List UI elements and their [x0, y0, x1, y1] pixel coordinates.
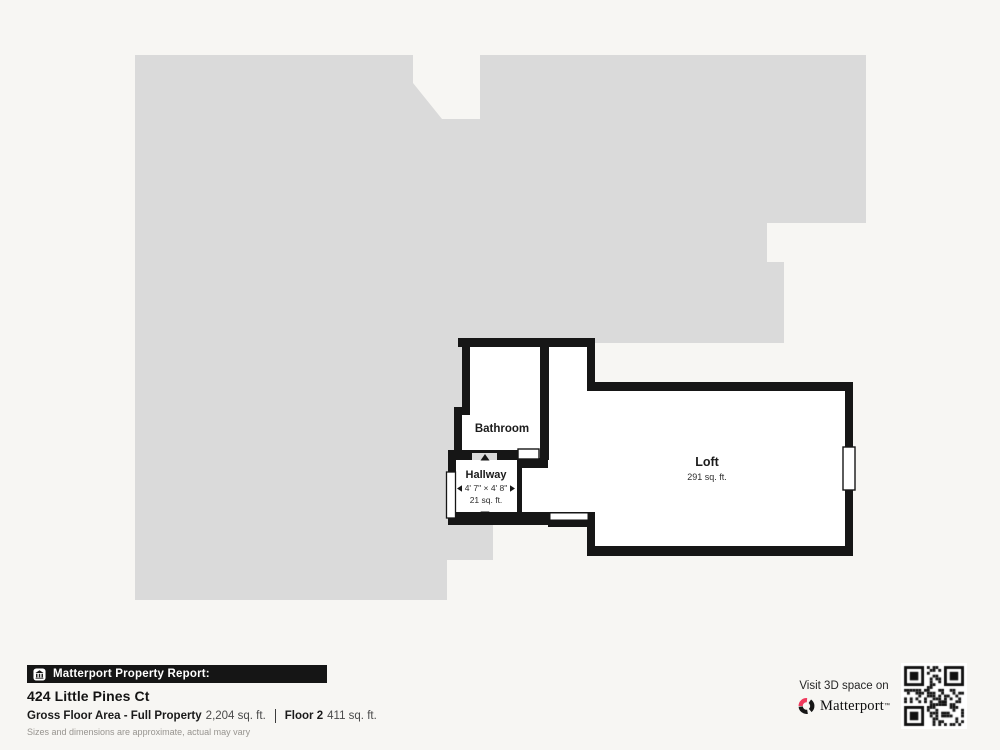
- building-icon: [33, 668, 46, 681]
- qr-code: [901, 663, 967, 729]
- gross-floor-area-value: 2,204 sq. ft.: [206, 710, 266, 722]
- floor-plan: Bathroom Hallway 4' 7" × 4' 8" 21 sq. ft…: [0, 0, 1000, 750]
- trademark-symbol: ™: [884, 702, 890, 710]
- floor-label: Floor 2: [285, 710, 323, 722]
- bathroom-alcove: [518, 449, 539, 459]
- floor-area-metrics: Gross Floor Area - Full Property 2,204 s…: [27, 709, 377, 723]
- property-report-page: Bathroom Hallway 4' 7" × 4' 8" 21 sq. ft…: [0, 0, 1000, 750]
- hallway-area: 21 sq. ft.: [470, 495, 503, 505]
- property-address: 424 Little Pines Ct: [27, 688, 150, 704]
- hallway-dimensions: 4' 7" × 4' 8": [465, 483, 508, 493]
- loft-floor: [595, 391, 845, 546]
- loft-label: Loft: [695, 455, 719, 469]
- metric-divider: [275, 709, 276, 723]
- gross-floor-area-label: Gross Floor Area - Full Property: [27, 710, 202, 722]
- lower-wall-window: [550, 513, 588, 520]
- report-bar-label: Matterport Property Report:: [53, 668, 210, 680]
- qr-code-box: [901, 663, 967, 729]
- disclaimer-text: Sizes and dimensions are approximate, ac…: [27, 727, 250, 737]
- matterport-logo-icon: [798, 697, 815, 715]
- visit-3d-text: Visit 3D space on: [786, 680, 902, 692]
- matterport-wordmark: Matterport: [820, 698, 884, 715]
- matterport-brand: Matterport™: [786, 697, 902, 715]
- report-title-bar: Matterport Property Report:: [27, 665, 327, 683]
- floor-area-value: 411 sq. ft.: [327, 710, 377, 722]
- bathroom-door-threshold: [472, 450, 497, 453]
- loft-area: 291 sq. ft.: [687, 472, 727, 482]
- loft-window: [843, 447, 855, 490]
- hallway-label: Hallway: [466, 469, 508, 481]
- bathroom-label: Bathroom: [475, 423, 529, 435]
- loft-left-opening: [587, 391, 595, 513]
- hallway-window: [447, 472, 456, 518]
